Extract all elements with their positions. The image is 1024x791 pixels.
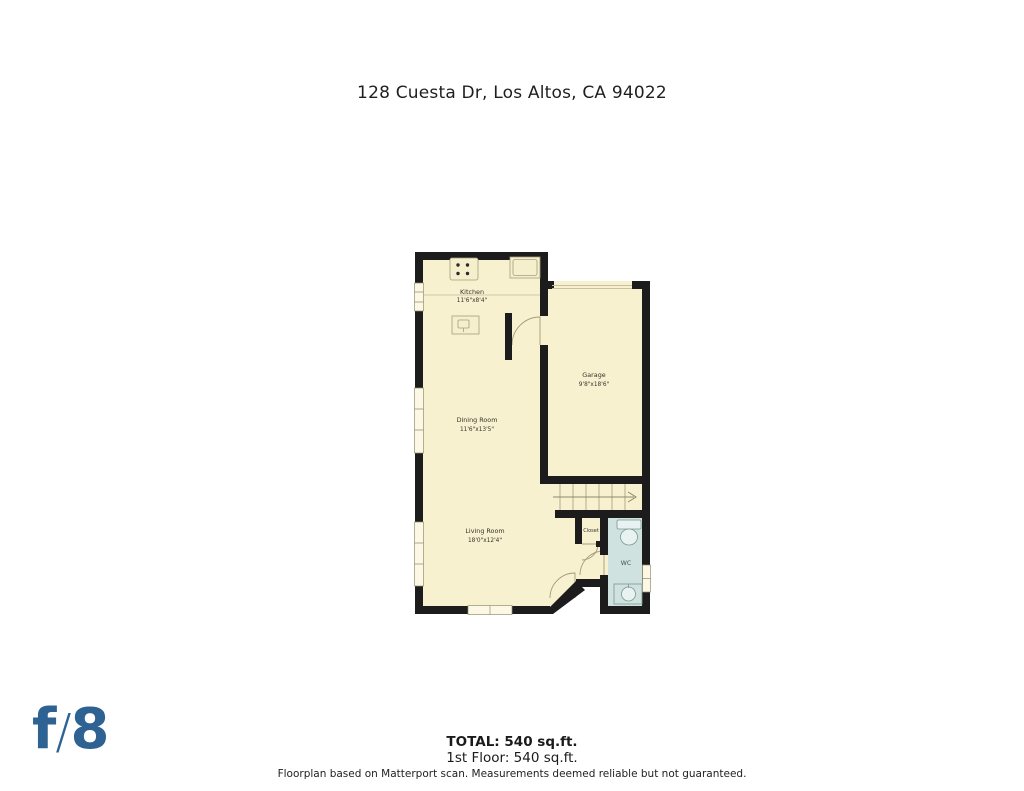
kitchen-dims: 11'6"x8'4" — [457, 298, 488, 304]
dining-room-dims: 11'6"x13'5" — [460, 427, 494, 433]
closet-label: Closet — [583, 528, 599, 534]
kitchen-label: Kitchen — [460, 288, 484, 296]
disclaimer-text: Floorplan based on Matterport scan. Meas… — [0, 768, 1024, 780]
stove-icon — [450, 258, 478, 280]
dining-room-label: Dining Room — [457, 416, 498, 424]
window — [415, 388, 424, 453]
living-room-dims: 18'0"x12'4" — [468, 538, 502, 544]
garage-label: Garage — [582, 371, 605, 379]
island-icon — [452, 316, 479, 334]
first-floor-area-label: 1st Floor: 540 sq.ft. — [0, 750, 1024, 766]
total-area-label: TOTAL: 540 sq.ft. — [0, 734, 1024, 750]
window — [415, 283, 424, 311]
address-title: 128 Cuesta Dr, Los Altos, CA 94022 — [0, 83, 1024, 103]
window — [415, 522, 424, 586]
garage-dims: 9'8"x18'6" — [579, 382, 610, 388]
living-room-label: Living Room — [465, 527, 504, 535]
floorplan-page: 128 Cuesta Dr, Los Altos, CA 94022 — [0, 0, 1024, 791]
area-summary: TOTAL: 540 sq.ft. 1st Floor: 540 sq.ft. … — [0, 734, 1024, 780]
floorplan: Kitchen 11'6"x8'4" Dining Room 11'6"x13'… — [410, 248, 655, 620]
kitchen-sink-icon — [510, 257, 540, 278]
wc-label: WC — [621, 560, 631, 567]
